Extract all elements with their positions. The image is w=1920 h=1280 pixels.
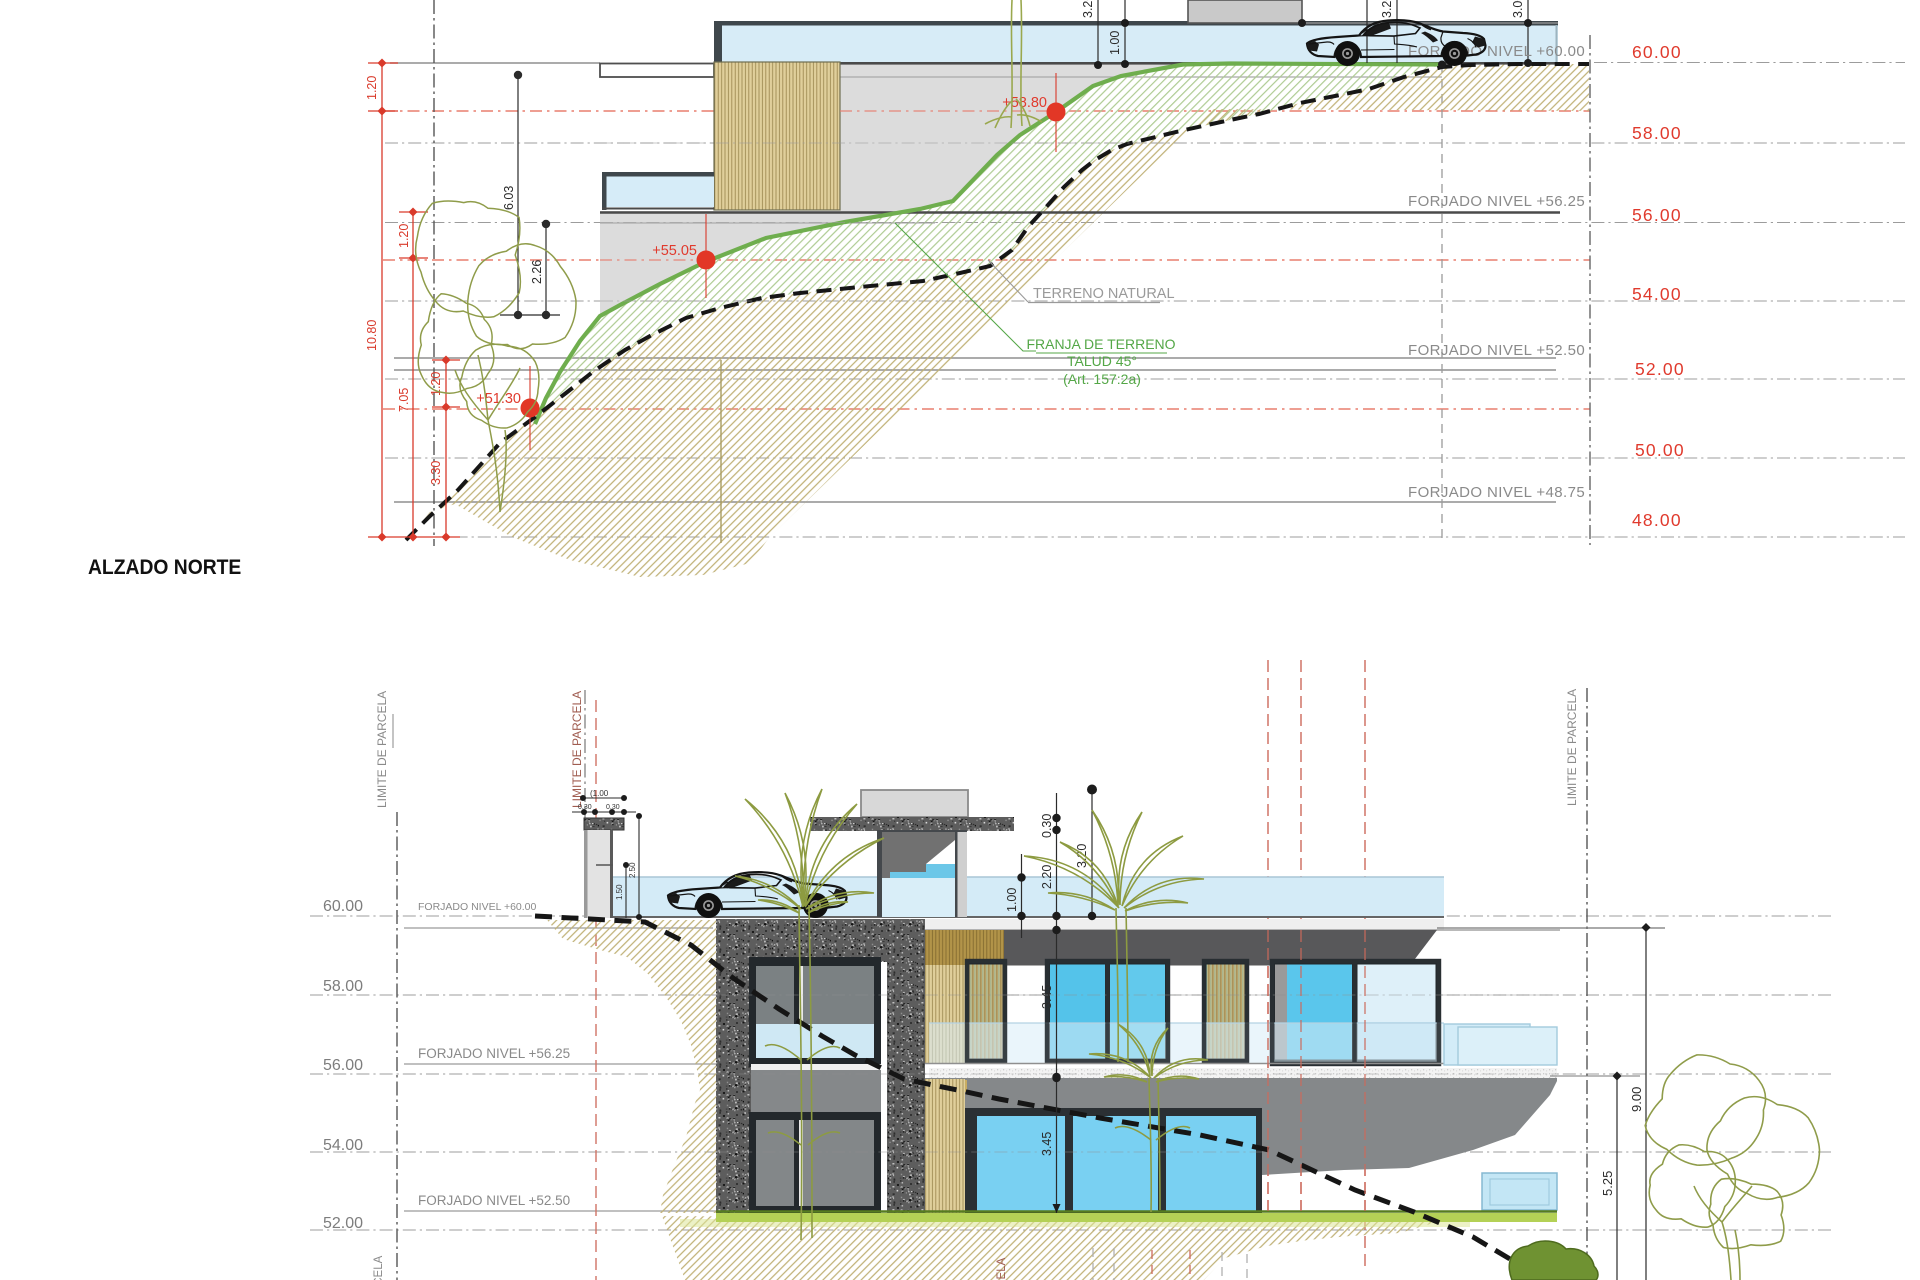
svg-text:1.50: 1.50 bbox=[615, 884, 624, 900]
svg-text:LIMITE DE PARCELA: LIMITE DE PARCELA bbox=[996, 1257, 1008, 1280]
svg-text:LIMITE DE PARCELA: LIMITE DE PARCELA bbox=[373, 1255, 385, 1280]
svg-text:3.20: 3.20 bbox=[1380, 0, 1394, 18]
svg-text:TALUD 45°: TALUD 45° bbox=[1067, 353, 1137, 369]
svg-text:0.30: 0.30 bbox=[578, 804, 592, 811]
svg-text:3.20: 3.20 bbox=[1081, 0, 1095, 18]
svg-text:FORJADO NIVEL +56.25: FORJADO NIVEL +56.25 bbox=[1408, 193, 1585, 210]
svg-text:3.45: 3.45 bbox=[1040, 985, 1054, 1009]
svg-text:58.00: 58.00 bbox=[323, 978, 363, 995]
svg-text:FORJADO NIVEL +60.00: FORJADO NIVEL +60.00 bbox=[418, 901, 537, 913]
svg-text:FORJADO NIVEL +52.50: FORJADO NIVEL +52.50 bbox=[1408, 342, 1585, 359]
svg-text:5.25: 5.25 bbox=[1600, 1171, 1615, 1196]
svg-text:(Art. 157:2a): (Art. 157:2a) bbox=[1063, 371, 1141, 387]
svg-text:3.30: 3.30 bbox=[429, 461, 443, 485]
svg-text:2.50: 2.50 bbox=[628, 862, 637, 878]
svg-text:60.00: 60.00 bbox=[1632, 42, 1682, 62]
svg-text:6.03: 6.03 bbox=[502, 186, 516, 210]
svg-text:58.00: 58.00 bbox=[1632, 123, 1682, 143]
svg-text:0.30: 0.30 bbox=[606, 804, 620, 811]
svg-text:FORJADO NIVEL +48.75: FORJADO NIVEL +48.75 bbox=[1408, 484, 1585, 501]
svg-text:9.00: 9.00 bbox=[1629, 1087, 1644, 1112]
svg-text:ALZADO NORTE: ALZADO NORTE bbox=[88, 556, 241, 579]
svg-text:50.00: 50.00 bbox=[1635, 440, 1685, 460]
svg-text:3.00: 3.00 bbox=[1511, 0, 1525, 18]
svg-text:2.20: 2.20 bbox=[1040, 865, 1054, 889]
svg-text:3.45: 3.45 bbox=[1040, 1132, 1054, 1156]
svg-text:1.20: 1.20 bbox=[365, 76, 379, 100]
svg-text:TERRENO NATURAL: TERRENO NATURAL bbox=[1033, 286, 1175, 302]
svg-text:52.00: 52.00 bbox=[323, 1215, 363, 1232]
svg-text:LIMITE DE PARCELA: LIMITE DE PARCELA bbox=[570, 691, 584, 808]
svg-text:56.00: 56.00 bbox=[323, 1057, 363, 1074]
svg-text:0.30: 0.30 bbox=[1040, 814, 1054, 838]
svg-text:3.20: 3.20 bbox=[1075, 844, 1089, 868]
svg-text:FORJADO NIVEL +60.00: FORJADO NIVEL +60.00 bbox=[1408, 43, 1585, 60]
svg-text:52.00: 52.00 bbox=[1635, 359, 1685, 379]
svg-text:+55.05: +55.05 bbox=[652, 243, 697, 259]
svg-text:FRANJA DE TERRENO: FRANJA DE TERRENO bbox=[1026, 336, 1175, 352]
svg-text:FORJADO NIVEL +56.25: FORJADO NIVEL +56.25 bbox=[418, 1046, 570, 1061]
svg-text:1.00: 1.00 bbox=[1005, 888, 1019, 912]
svg-text:48.00: 48.00 bbox=[1632, 510, 1682, 530]
svg-text:10.80: 10.80 bbox=[365, 320, 379, 351]
svg-text:LIMITE DE PARCELA: LIMITE DE PARCELA bbox=[1565, 689, 1579, 806]
svg-text:LIMITE DE PARCELA: LIMITE DE PARCELA bbox=[375, 691, 389, 808]
svg-text:(1.00: (1.00 bbox=[590, 789, 609, 798]
svg-text:2.26: 2.26 bbox=[530, 260, 544, 284]
svg-text:54.00: 54.00 bbox=[323, 1137, 363, 1154]
svg-text:7.05: 7.05 bbox=[397, 388, 411, 412]
svg-text:1.20: 1.20 bbox=[397, 224, 411, 248]
svg-text:54.00: 54.00 bbox=[1632, 284, 1682, 304]
svg-text:FORJADO NIVEL +52.50: FORJADO NIVEL +52.50 bbox=[418, 1193, 570, 1208]
svg-text:1.00: 1.00 bbox=[1108, 31, 1122, 55]
svg-text:56.00: 56.00 bbox=[1632, 205, 1682, 225]
svg-text:60.00: 60.00 bbox=[323, 898, 363, 915]
